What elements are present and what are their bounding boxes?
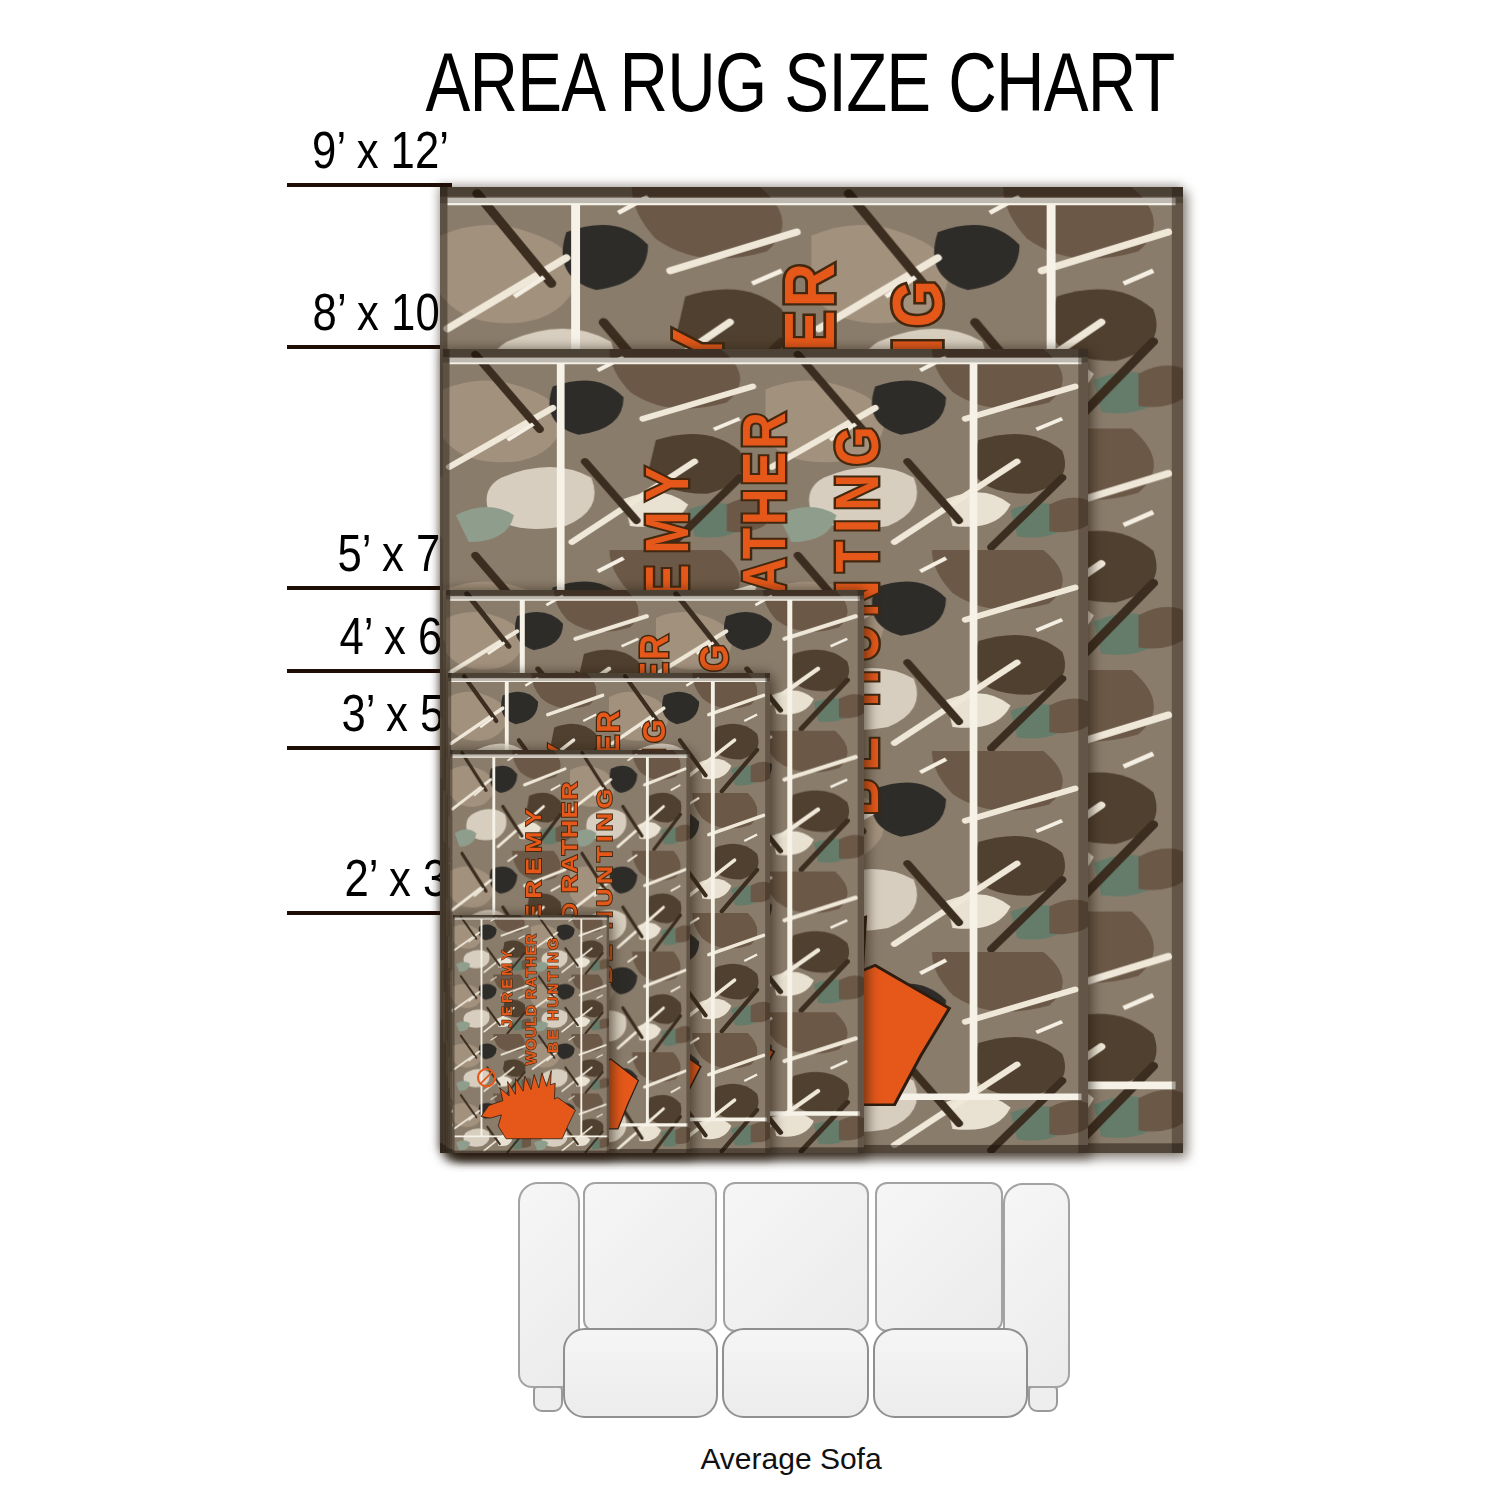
page-title: AREA RUG SIZE CHART: [240, 34, 1360, 131]
size-line-9x12: [287, 183, 452, 187]
size-label-4x6: 4’ x 6’: [313, 607, 452, 665]
sofa-back-cushion: [723, 1182, 869, 1332]
rug-surface: [453, 915, 609, 1153]
size-line-2x3: [287, 911, 465, 915]
size-label-8x10: 8’ x 10’: [313, 283, 447, 341]
size-label-3x5: 3’ x 5’: [314, 684, 454, 742]
size-line-5x7: [287, 586, 458, 590]
sofa-seat-cushion: [563, 1328, 718, 1418]
size-line-8x10: [287, 345, 455, 349]
sofa-label: Average Sofa: [512, 1442, 1070, 1476]
sofa-back-cushion: [875, 1182, 1003, 1332]
sofa-seat-cushion: [722, 1328, 869, 1418]
size-line-4x6: [287, 669, 460, 673]
size-label-9x12: 9’ x 12’: [312, 121, 444, 179]
size-label-5x7: 5’ x 7’: [313, 524, 450, 582]
rug-2x3: [453, 915, 609, 1153]
area-rug-size-chart: JEREMY WOULD RATHER BE HUNTING: [0, 0, 1500, 1500]
size-label-2x3: 2’ x 3’: [314, 849, 457, 907]
sofa-right-foot: [1028, 1386, 1058, 1412]
size-line-3x5: [287, 746, 462, 750]
sofa-left-foot: [533, 1386, 563, 1412]
sofa-seat-cushion: [873, 1328, 1028, 1418]
sofa-back-cushion: [583, 1182, 717, 1332]
